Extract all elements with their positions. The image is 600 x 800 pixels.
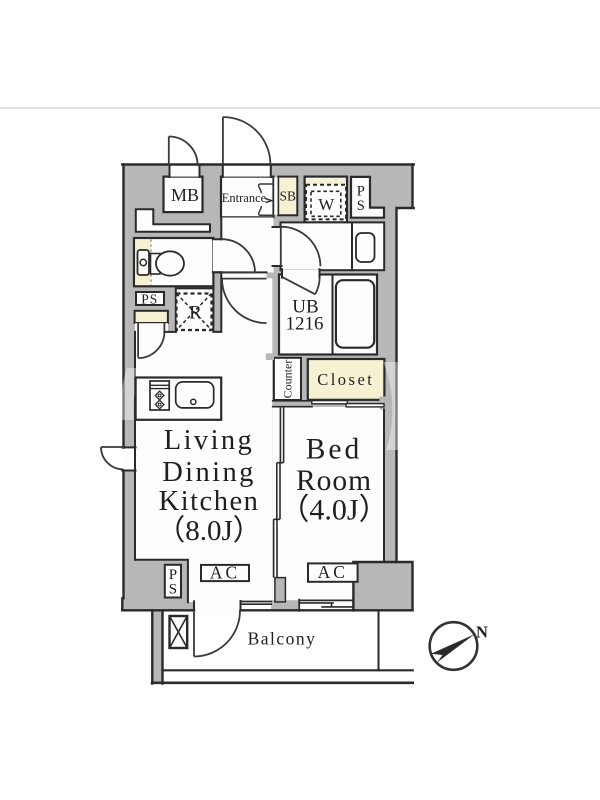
svg-text:P: P	[357, 183, 365, 199]
svg-text:Room: Room	[296, 465, 372, 497]
svg-text:MB: MB	[171, 185, 199, 205]
svg-text:R: R	[189, 303, 202, 324]
svg-text:S: S	[357, 198, 365, 214]
svg-text:Entrance: Entrance	[222, 191, 267, 205]
svg-text:S: S	[169, 582, 177, 598]
svg-text:Closet: Closet	[317, 370, 374, 389]
svg-text:SB: SB	[280, 189, 297, 204]
svg-text:PS: PS	[141, 291, 158, 306]
svg-text:1216: 1216	[286, 314, 324, 335]
svg-text:N: N	[476, 623, 488, 642]
svg-text:Living: Living	[164, 425, 254, 456]
svg-text:（4.0J）: （4.0J）	[279, 494, 388, 527]
svg-text:AC: AC	[318, 562, 348, 582]
svg-text:Bed: Bed	[306, 434, 363, 466]
svg-text:Kitchen: Kitchen	[159, 486, 260, 517]
svg-text:Dining: Dining	[162, 457, 256, 488]
svg-text:Counter: Counter	[280, 360, 294, 399]
svg-text:（8.0J）: （8.0J）	[156, 515, 262, 547]
svg-text:Balcony: Balcony	[248, 629, 317, 649]
svg-text:AC: AC	[210, 563, 240, 583]
svg-text:W: W	[318, 195, 335, 214]
